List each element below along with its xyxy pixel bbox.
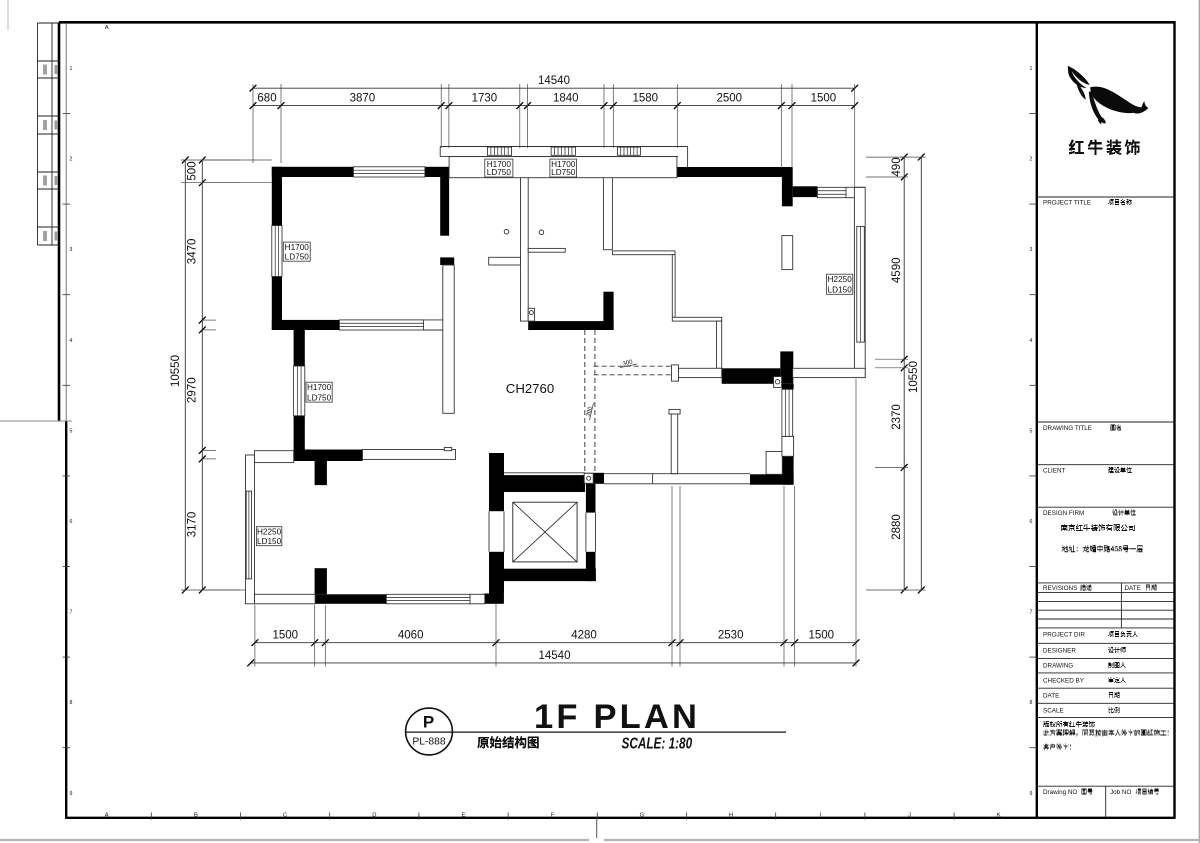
svg-text:PROJECT TITLE: PROJECT TITLE: [1043, 200, 1091, 207]
svg-text:A: A: [105, 25, 109, 31]
svg-text:4280: 4280: [571, 630, 597, 642]
svg-text:5: 5: [70, 428, 73, 434]
svg-text:3170: 3170: [187, 512, 199, 538]
svg-text:REVISIONS: REVISIONS: [1043, 585, 1077, 592]
svg-text:1500: 1500: [811, 93, 837, 105]
svg-text:490: 490: [891, 157, 903, 176]
svg-text:B: B: [194, 812, 198, 818]
svg-text:LD150: LD150: [257, 537, 282, 546]
svg-text:F: F: [551, 812, 555, 818]
svg-text:1: 1: [1030, 66, 1033, 72]
svg-text:SCALE: SCALE: [1043, 708, 1064, 715]
svg-text:H2250: H2250: [828, 275, 853, 284]
svg-text:2530: 2530: [718, 630, 744, 642]
svg-text:K: K: [997, 812, 1001, 818]
svg-text:1730: 1730: [472, 93, 498, 105]
svg-text:1580: 1580: [633, 93, 659, 105]
svg-text:DRAWING TITLE: DRAWING TITLE: [1043, 425, 1092, 432]
svg-text:DRAWING: DRAWING: [1043, 663, 1073, 670]
svg-text:D: D: [372, 812, 376, 818]
svg-text:2370: 2370: [891, 404, 903, 430]
svg-text:DESIGN FIRM: DESIGN FIRM: [1043, 510, 1084, 517]
svg-text:4060: 4060: [398, 630, 424, 642]
svg-text:CH2760: CH2760: [506, 381, 554, 396]
svg-text:14540: 14540: [538, 75, 570, 87]
svg-text:1F PLAN: 1F PLAN: [534, 698, 700, 736]
svg-text:680: 680: [257, 93, 276, 105]
svg-text:8: 8: [1030, 700, 1033, 706]
svg-text:2880: 2880: [891, 514, 903, 540]
svg-text:E: E: [462, 812, 466, 818]
svg-text:PROJECT DIR: PROJECT DIR: [1043, 632, 1085, 639]
svg-text:J: J: [908, 812, 911, 818]
svg-text:2: 2: [70, 157, 73, 163]
svg-text:7: 7: [70, 610, 73, 616]
svg-text:Job NO: Job NO: [1110, 789, 1131, 796]
svg-text:H1700: H1700: [307, 383, 332, 392]
svg-text:LD750: LD750: [307, 393, 332, 402]
svg-text:H1700: H1700: [285, 243, 310, 252]
svg-text:7: 7: [1030, 610, 1033, 616]
svg-text:6: 6: [70, 519, 73, 525]
svg-text:2500: 2500: [717, 93, 743, 105]
svg-text:4: 4: [1030, 338, 1033, 344]
svg-text:A: A: [105, 812, 109, 818]
svg-text:H: H: [729, 812, 733, 818]
svg-text:PL-888: PL-888: [412, 737, 445, 748]
svg-text:G: G: [640, 812, 645, 818]
svg-text:SCALE: 1:80: SCALE: 1:80: [622, 735, 693, 752]
svg-text:9: 9: [1030, 791, 1033, 797]
svg-text:14540: 14540: [539, 650, 571, 662]
svg-text:3: 3: [70, 247, 73, 253]
svg-text:10550: 10550: [170, 355, 182, 387]
svg-text:8: 8: [70, 700, 73, 706]
svg-text:1500: 1500: [273, 630, 299, 642]
svg-text:4: 4: [70, 338, 73, 344]
svg-text:C: C: [283, 812, 287, 818]
svg-text:3: 3: [1030, 247, 1033, 253]
svg-text:3870: 3870: [350, 93, 376, 105]
svg-text:500: 500: [187, 161, 199, 180]
svg-text:LD750: LD750: [487, 168, 512, 177]
svg-text:DATE: DATE: [1125, 585, 1141, 592]
svg-text:P: P: [423, 713, 434, 732]
svg-text:9: 9: [70, 791, 73, 797]
svg-text:Drawing NO: Drawing NO: [1043, 789, 1077, 796]
svg-text:2: 2: [1030, 157, 1033, 163]
svg-text:DESIGNER: DESIGNER: [1043, 648, 1076, 655]
svg-text:1840: 1840: [553, 93, 579, 105]
svg-text:1500: 1500: [809, 630, 835, 642]
svg-text:2970: 2970: [187, 377, 199, 403]
svg-text:LD750: LD750: [551, 168, 576, 177]
svg-text:DATE: DATE: [1043, 693, 1059, 700]
svg-text:5: 5: [1030, 428, 1033, 434]
svg-text:10550: 10550: [908, 361, 920, 393]
svg-text:6: 6: [1030, 519, 1033, 525]
svg-text:4590: 4590: [891, 258, 903, 284]
svg-text:CHECKED BY: CHECKED BY: [1043, 678, 1085, 685]
svg-text:3470: 3470: [187, 239, 199, 265]
svg-text:1: 1: [70, 66, 73, 72]
svg-text:CLIENT: CLIENT: [1043, 468, 1066, 475]
svg-text:LD750: LD750: [285, 252, 310, 261]
svg-text:LD150: LD150: [828, 286, 853, 295]
svg-text:H2250: H2250: [257, 528, 282, 537]
